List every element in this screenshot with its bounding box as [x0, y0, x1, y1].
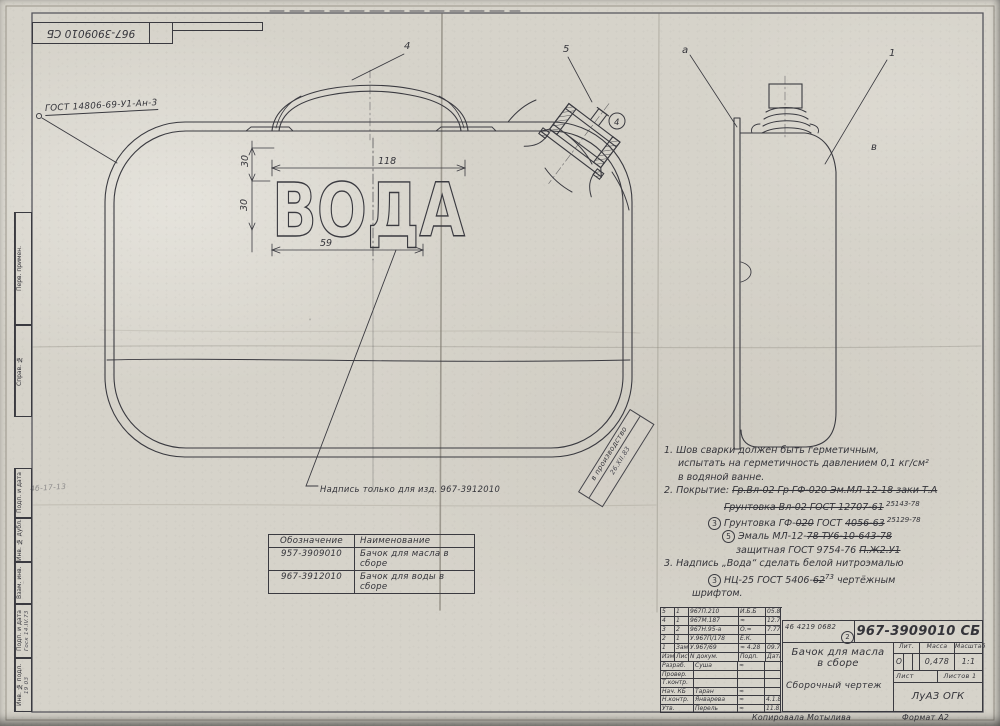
note-text: 3. Надпись „Вода“ сделать белой нитроэма…: [664, 558, 904, 569]
staff-cell: Н.контр.: [661, 696, 694, 705]
copied-by-label: Копировала Мотылива: [752, 713, 851, 722]
margin-stamp-label: Подп. и дата: [15, 605, 24, 657]
org-cell: ЛуАЗ ОГК: [893, 682, 983, 712]
staff-cell: Разраб.: [661, 662, 694, 671]
drawing-sheet: ВОДА 118 59 30 30 4 5 4: [0, 0, 1000, 726]
revision-cell: 12.78: [766, 617, 781, 626]
staff-cell: 11.81: [765, 705, 781, 714]
revision-cell: Зам.: [675, 644, 689, 653]
margin-stamp-box: Инв. № дубл.: [14, 518, 32, 562]
parts-header-row: ОбозначениеНаименование: [269, 535, 474, 547]
filler-neck: [508, 78, 642, 210]
staff-cell: Таран: [694, 688, 738, 697]
note-line: шрифтом.: [692, 587, 994, 600]
parts-cell: Бачок для масла в сборе: [355, 548, 474, 570]
revision-cell: 1: [675, 617, 689, 626]
note-text: 78 ТУ6-10-643-78: [807, 531, 892, 542]
note-text: 25143-78: [884, 500, 920, 508]
revision-cell: 7.77: [766, 626, 781, 635]
revision-cell: 967М.187: [689, 617, 739, 626]
mass-value: 0,478: [920, 654, 954, 670]
parts-row: 957-3909010Бачок для масла в сборе: [269, 547, 474, 570]
revision-cell: 05.81: [766, 608, 781, 617]
margin-stamp-box: Взам. инв. №: [14, 562, 32, 604]
title-block-code-cell: 46 4219 0682 2: [782, 620, 855, 643]
revision-cell: 09.76: [766, 644, 781, 653]
parts-cell: Наименование: [355, 535, 474, 547]
note-text: чертёжным: [834, 575, 895, 586]
sheets-label: Листов 1: [938, 671, 982, 682]
revision-cell: 2: [661, 635, 675, 644]
margin-stamp-value: Госк 14.IV.73: [24, 605, 31, 657]
staff-table: Разраб.Суша≈Провер.Т.контр.Нач. КБТаран≈…: [660, 661, 782, 713]
staff-cell: [765, 662, 781, 671]
note-text: 020: [796, 518, 814, 529]
note-text: П.Ж2.У1: [859, 545, 900, 556]
note-line: 3 Грунтовка ГФ-020 ГОСТ 4056-63 25129-78: [708, 514, 994, 530]
mass-value-cell: 0,478: [919, 653, 955, 671]
revision-cell: 1: [661, 644, 675, 653]
top-designation-number: 967-3909010 СБ: [33, 23, 149, 42]
staff-cell: Т.контр.: [661, 679, 694, 688]
note-text: испытать на герметичность давлением 0,1 …: [678, 458, 929, 469]
part-title-line1: Бачок для масла: [783, 647, 893, 658]
margin-stamp-label: Инв. № дубл.: [15, 519, 24, 561]
dim-118: 118: [378, 156, 396, 167]
note-line: 3. Надпись „Вода“ сделать белой нитроэма…: [664, 557, 994, 570]
doc-number: 967-3909010 СБ: [855, 621, 982, 642]
revision-cell: 2: [675, 626, 689, 635]
staff-cell: [738, 679, 765, 688]
margin-stamp-box: Перв. примен.: [14, 212, 32, 325]
margin-stamp-box: Инв. № подл.19 03: [14, 658, 32, 712]
word-mark-voda: ВОДА: [272, 168, 465, 254]
circled-item-number: 5: [722, 530, 735, 543]
note-line: 1. Шов сварки должен быть герметичным,: [664, 444, 994, 457]
note-line: испытать на герметичность давлением 0,1 …: [678, 457, 994, 470]
lit-value-cell: О: [893, 653, 920, 671]
tank-handle: [246, 70, 496, 140]
lit-value: О: [896, 654, 919, 670]
staff-cell: Суша: [694, 662, 738, 671]
staff-cell: [738, 671, 765, 680]
margin-stamp-label: Взам. инв. №: [15, 563, 24, 603]
margin-stamp-value: [24, 326, 31, 416]
note-line: 2. Покрытие: Гр.Вл-02 Гр ГФ-020 Эм.МЛ-12…: [664, 484, 994, 497]
circled-item-number: 3: [708, 574, 721, 587]
callout-item-1: 1: [889, 48, 895, 59]
staff-cell: ≈: [738, 705, 765, 714]
sheet-frame: [6, 6, 994, 720]
staff-cell: ≈: [738, 662, 765, 671]
margin-stamp-label: Инв. № подл.: [15, 659, 24, 711]
margin-stamp-value: [24, 213, 31, 324]
revision-cell: 5: [661, 608, 675, 617]
staff-cell: [765, 679, 781, 688]
callout-handle: 4: [404, 41, 410, 52]
margin-stamp-value: 19 03: [24, 659, 31, 711]
revision-cell: 967П.210: [689, 608, 739, 617]
parts-table: ОбозначениеНаименование957-3909010Бачок …: [268, 534, 475, 594]
note-text: 62: [813, 575, 825, 586]
revision-table: 51967П.210И.Б.Б05.8141967М.187≈12.783296…: [660, 607, 782, 662]
parts-cell: 957-3909010: [269, 548, 355, 570]
note-line: в водяной ванне.: [678, 471, 994, 484]
inscription-note: Надпись только для изд. 967-3912010: [320, 484, 500, 494]
title-block-doc-number-cell: 967-3909010 СБ: [854, 620, 983, 643]
revision-cell: 1: [675, 608, 689, 617]
scale-value: 1:1: [955, 654, 982, 670]
staff-cell: Провер.: [661, 671, 694, 680]
staff-cell: [765, 688, 781, 697]
title-block-name-cell: Бачок для масла в сборе Сборочный чертеж: [782, 642, 894, 712]
note-text: Эмаль МЛ-12-: [735, 531, 807, 542]
dim-59: 59: [320, 238, 332, 249]
staff-cell: ≈: [738, 688, 765, 697]
note-text: шрифтом.: [692, 588, 743, 599]
parts-cell: Бачок для воды в сборе: [355, 571, 474, 593]
technical-notes: 1. Шов сварки должен быть герметичным,ис…: [664, 444, 994, 600]
staff-cell: ≈: [738, 696, 765, 705]
lit-label: Лит.: [894, 643, 919, 650]
note-text: Грунтовка ГФ-: [721, 518, 796, 529]
staff-cell: Утв.: [661, 705, 694, 714]
note-text: НЦ-25 ГОСТ 5406-: [721, 575, 813, 586]
scale-value-cell: 1:1: [954, 653, 983, 671]
callout-neck: 5: [563, 44, 569, 55]
margin-stamp-box: Подп. и дата: [14, 468, 32, 518]
circled-item-number: 3: [708, 517, 721, 530]
side-view-callouts: а 1 в: [682, 45, 895, 164]
format-label: Формат А2: [902, 713, 949, 722]
revision-cell: [766, 635, 781, 644]
margin-stamp-value: [24, 563, 31, 603]
margin-stamp-value: [24, 469, 31, 517]
mass-label: Масса: [920, 643, 954, 650]
note-text: 1. Шов сварки должен быть герметичным,: [664, 445, 879, 456]
note-line: защитная ГОСТ 9754-76 П.Ж2.У1: [736, 544, 994, 557]
note-line: Грунтовка Вл-02 ГОСТ 12707-61 25143-78: [724, 498, 994, 514]
revision-cell: 1: [675, 635, 689, 644]
dim-30-bottom: 30: [239, 199, 250, 211]
parts-cell: 967-3912010: [269, 571, 355, 593]
staff-cell: Январева: [694, 696, 738, 705]
note-text: в водяной ванне.: [678, 472, 764, 483]
note-text: 73: [825, 573, 834, 581]
note-text: Гр.Вл-02 Гр ГФ-020 Эм.МЛ-12-18 заки Т.А: [732, 485, 937, 496]
note-text: Грунтовка Вл-02 ГОСТ 12707-61: [724, 502, 884, 513]
part-title-line2: в сборе: [783, 658, 893, 669]
revision-cell: 3: [661, 626, 675, 635]
margin-stamp-box: Справ. №: [14, 325, 32, 417]
revision-cell: Е.К.: [739, 635, 766, 644]
tank-side-view: [734, 76, 836, 449]
org-name: ЛуАЗ ОГК: [894, 683, 982, 710]
margin-stamp-label: Подп. и дата: [15, 469, 24, 517]
note-line: 3 НЦ-25 ГОСТ 5406-6273 чертёжным: [708, 571, 994, 587]
top-designation-small-cell: [149, 22, 173, 44]
revision-cell: 4: [661, 617, 675, 626]
callout-view-v: в: [871, 142, 877, 153]
note-line: 5 Эмаль МЛ-12-78 ТУ6-10-643-78: [722, 530, 994, 543]
item-callouts: 4 5 4: [352, 41, 625, 129]
note-text: защитная ГОСТ 9754-76: [736, 545, 859, 556]
staff-cell: 4.1.83: [765, 696, 781, 705]
doc-type: Сборочный чертеж: [786, 681, 893, 691]
staff-cell: [694, 679, 738, 688]
parts-row: 967-3912010Бачок для воды в сборе: [269, 570, 474, 593]
revision-cell: ≈: [739, 617, 766, 626]
margin-stamp-box: Подп. и датаГоск 14.IV.73: [14, 604, 32, 658]
margin-stamp-label: Перв. примен.: [15, 213, 24, 324]
staff-cell: Перель: [694, 705, 738, 714]
staff-cell: [765, 671, 781, 680]
margin-stamp-value: [24, 519, 31, 561]
staff-cell: [694, 671, 738, 680]
revision-cell: У.967П/178: [689, 635, 739, 644]
callout-cap-circled: 4: [614, 118, 619, 128]
margin-stamp-label: Справ. №: [15, 326, 24, 416]
revision-cell: И.Б.Б: [739, 608, 766, 617]
revision-cell: О.≈: [739, 626, 766, 635]
staff-cell: Нач. КБ: [661, 688, 694, 697]
note-text: 25129-78: [885, 516, 921, 524]
revision-cell: У.967/69: [689, 644, 739, 653]
note-text: ГОСТ: [814, 518, 845, 529]
scale-label: Масштаб: [955, 643, 982, 650]
sheet-label: Лист: [896, 671, 937, 682]
dim-30-top: 30: [240, 155, 251, 167]
top-designation-box: 967-3909010 СБ: [32, 22, 150, 44]
revision-cell: ≈ 4.28: [739, 644, 766, 653]
note-text: 2. Покрытие:: [664, 485, 732, 496]
note-text: 4056-63: [845, 518, 885, 529]
callout-view-a: а: [682, 45, 688, 56]
code-number: 46 4219 0682: [785, 623, 836, 631]
parts-cell: Обозначение: [269, 535, 355, 547]
gost-weld-leader: [36, 113, 117, 163]
top-designation-strip: [172, 22, 263, 31]
revision-cell: 967Н.95-а: [689, 626, 739, 635]
